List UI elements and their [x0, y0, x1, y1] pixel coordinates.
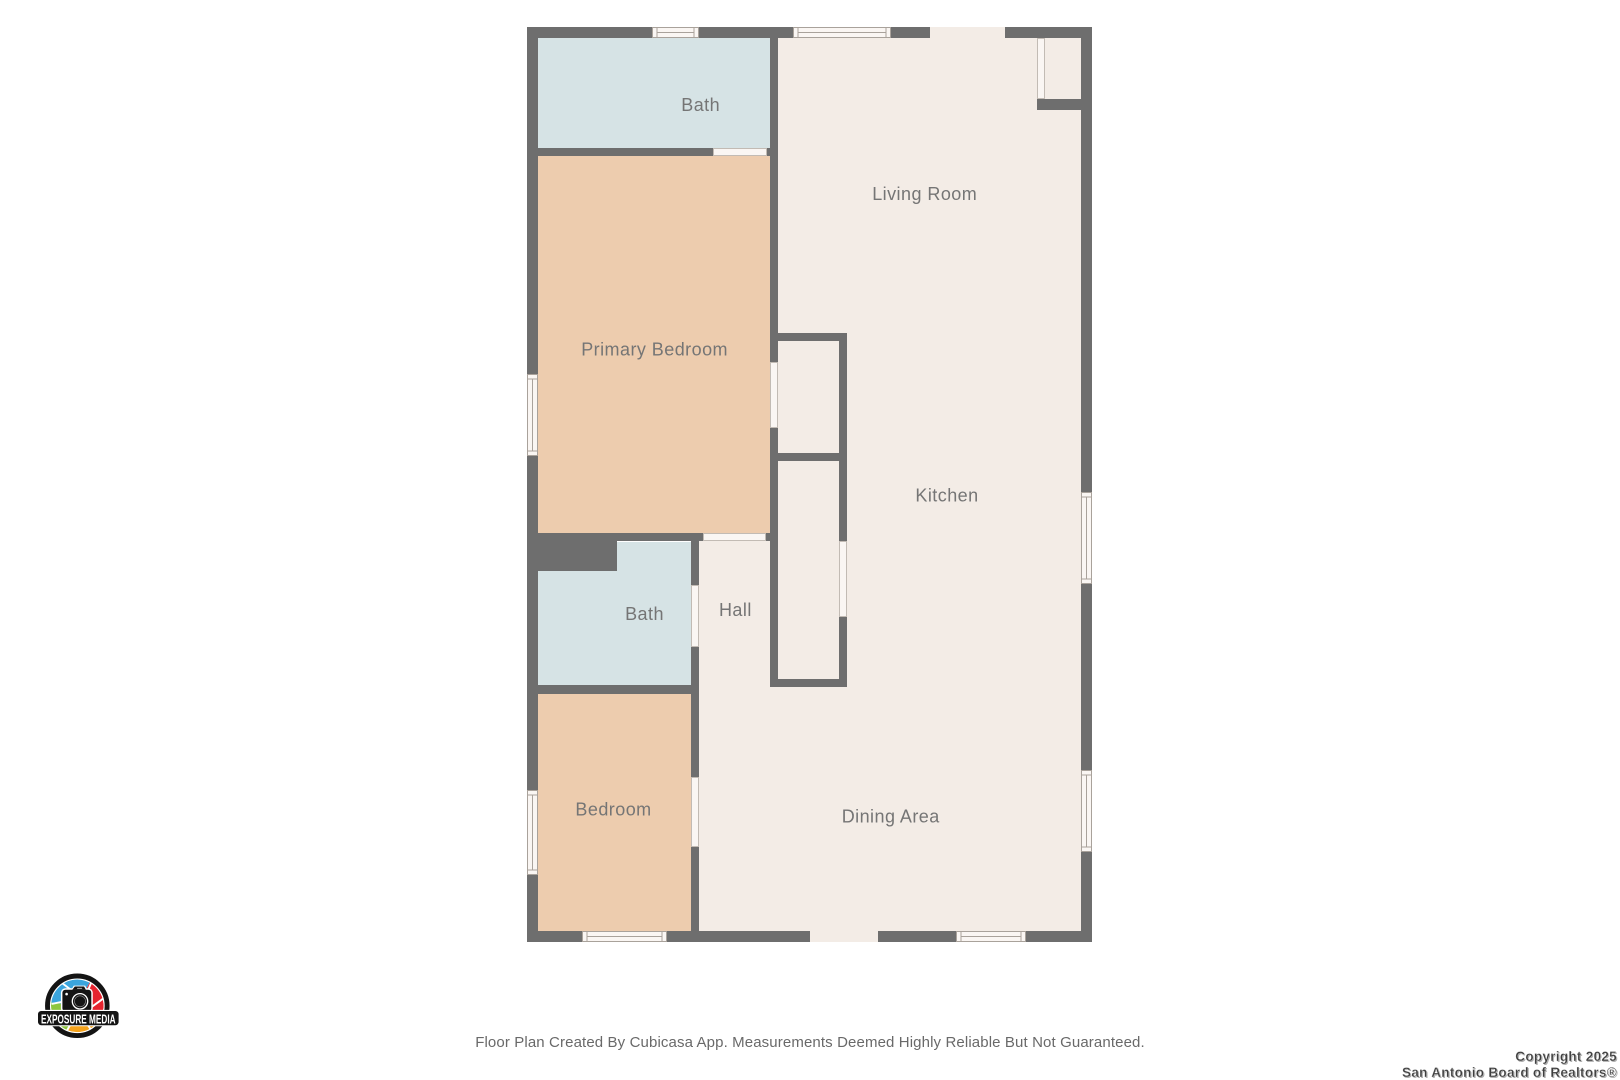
svg-text:Hall: Hall: [719, 600, 752, 620]
svg-text:Bedroom: Bedroom: [575, 799, 651, 819]
svg-text:Bath: Bath: [625, 604, 664, 624]
svg-text:Living Room: Living Room: [872, 184, 977, 204]
svg-text:Kitchen: Kitchen: [915, 485, 978, 505]
svg-text:Bath: Bath: [681, 95, 720, 115]
svg-text:Primary Bedroom: Primary Bedroom: [581, 340, 728, 360]
svg-text:EXPOSURE MEDIA: EXPOSURE MEDIA: [41, 1011, 116, 1026]
svg-text:Dining Area: Dining Area: [842, 807, 941, 827]
